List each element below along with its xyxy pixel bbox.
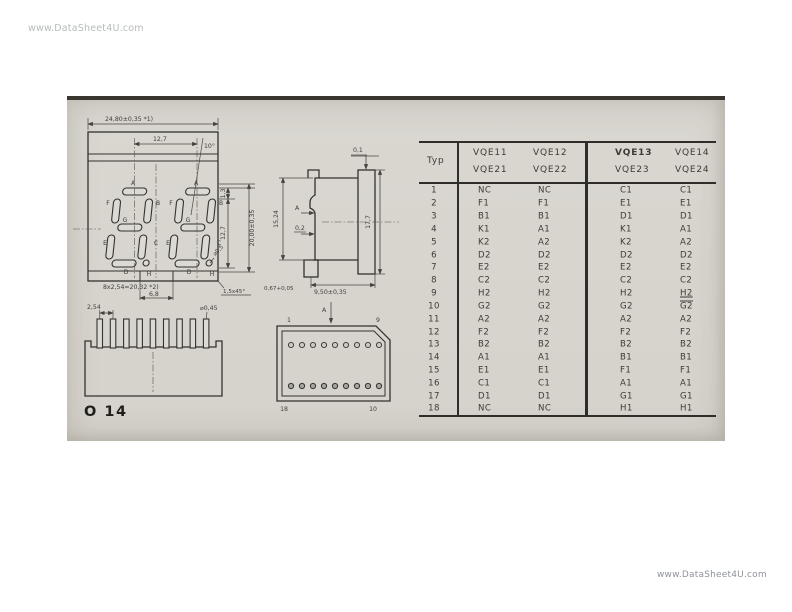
table-row: 13B2B2B2B2 <box>419 339 716 352</box>
table-cell: E1 <box>478 366 490 376</box>
table-cell: B1 <box>538 212 550 222</box>
table-row: 1NCNCC1C1 <box>419 185 716 198</box>
table-cell: K1 <box>478 224 490 234</box>
package-drawings: A F B G E C D H <box>67 100 412 441</box>
table-cell: F1 <box>620 366 631 376</box>
bottom-view-drawing: 1 9 18 10 A <box>277 302 390 413</box>
table-cell: 16 <box>422 378 446 388</box>
table-cell: H1 <box>620 404 633 414</box>
table-header-vqe23: VQE23 <box>615 165 649 175</box>
table-cell: A1 <box>680 378 692 388</box>
dim-step: 0,2 <box>295 225 305 232</box>
dim-digit-pitch: 12,7 <box>153 136 167 143</box>
table-header-vqe21: VQE21 <box>473 165 507 175</box>
side-profile-view-drawing: 0,1 A 0,2 15,24 17,7 0,67+0,05 9,50±0, <box>264 147 399 296</box>
table-cell: 12 <box>422 327 446 337</box>
table-cell: 3 <box>422 212 446 222</box>
pin-number-18: 18 <box>280 406 288 413</box>
dim-package-depth: 9,50±0,35 <box>314 289 347 296</box>
table-cell: A2 <box>538 314 550 324</box>
table-row: 17D1D1G1G1 <box>419 390 716 403</box>
table-cell: F1 <box>538 199 549 209</box>
table-cell: D1 <box>620 212 633 222</box>
watermark-bottom: www.DataSheet4U.com <box>657 570 767 580</box>
watermark-top: www.DataSheet4U.com <box>28 23 144 34</box>
table-cell: D1 <box>538 391 551 401</box>
dim-overall-height: 20,00±0,35 <box>249 210 256 247</box>
table-cell: NC <box>478 404 491 414</box>
table-row: 15E1E1F1F1 <box>419 365 716 378</box>
table-cell: E1 <box>680 199 692 209</box>
table-cell: 18 <box>422 404 446 414</box>
table-cell: NC <box>538 404 551 414</box>
table-cell: A1 <box>478 353 490 363</box>
table-header-vqe11: VQE11 <box>473 148 507 158</box>
table-cell: 15 <box>422 366 446 376</box>
pin-side-view-drawing: 2,54 ⌀0,45 <box>85 304 222 396</box>
table-cell: C1 <box>680 186 692 196</box>
table-cell: B1 <box>680 353 692 363</box>
table-cell: NC <box>538 186 551 196</box>
table-cell: 13 <box>422 340 446 350</box>
table-cell: B2 <box>478 340 490 350</box>
table-cell: D2 <box>620 250 633 260</box>
table-header-vqe14: VQE14 <box>675 148 709 158</box>
table-cell: D2 <box>680 250 693 260</box>
dim-pin-length: 0,67+0,05 <box>264 286 294 292</box>
table-cell: G2 <box>620 301 633 311</box>
dim-notch-width: 6,8 <box>149 291 159 298</box>
table-row: 18NCNCH1H1 <box>419 403 716 416</box>
table-row: 8C2C2C2C2 <box>419 275 716 288</box>
table-row: 4K1A1K1A1 <box>419 223 716 236</box>
table-cell: E1 <box>538 366 550 376</box>
front-view-drawing: 24,80±0,35 *1) 12,7 10° 1,3 12,7 20,00±0… <box>73 116 256 300</box>
table-cell: G2 <box>680 301 693 311</box>
table-cell: H2 <box>538 289 551 299</box>
table-cell: E2 <box>538 263 550 273</box>
table-row: 7E2E2E2E2 <box>419 262 716 275</box>
table-cell: 7 <box>422 263 446 273</box>
table-cell: E2 <box>620 263 632 273</box>
table-cell: K2 <box>478 237 490 247</box>
dim-body-height: 15,24 <box>273 210 280 228</box>
pin-number-9: 9 <box>376 317 380 324</box>
table-cell: G2 <box>538 301 551 311</box>
table-cell: C2 <box>478 276 490 286</box>
page: { "watermarks": { "top": "www.DataSheet4… <box>0 0 792 612</box>
table-cell: 2 <box>422 199 446 209</box>
table-cell: G1 <box>680 391 693 401</box>
table-cell: H2 <box>478 289 491 299</box>
table-cell: 11 <box>422 314 446 324</box>
table-row: 14A1A1B1B1 <box>419 352 716 365</box>
table-row: 11A2A2A2A2 <box>419 313 716 326</box>
table-header-vqe13: VQE13 <box>615 148 652 158</box>
dim-pin-diameter: ⌀0,45 <box>200 305 218 312</box>
table-cell: 4 <box>422 224 446 234</box>
dim-dp-diameter: ⌀0,5 <box>212 244 225 257</box>
table-cell: A2 <box>680 314 692 324</box>
table-cell: A2 <box>620 314 632 324</box>
pinout-table: Typ VQE11 VQE12 VQE13 VQE14 VQE21 VQE22 … <box>419 141 716 417</box>
pin-table-rows: 1NCNCC1C12F1F1E1E13B1B1D1D14K1A1K1A15K2A… <box>419 185 716 416</box>
table-cell: D1 <box>680 212 693 222</box>
table-cell: G1 <box>620 391 633 401</box>
table-cell: 6 <box>422 250 446 260</box>
table-cell: B2 <box>680 340 692 350</box>
table-cell: A1 <box>538 353 550 363</box>
table-cell: A2 <box>538 237 550 247</box>
table-cell: K1 <box>620 224 632 234</box>
table-cell: B2 <box>538 340 550 350</box>
table-cell: K2 <box>620 237 632 247</box>
table-cell: NC <box>478 186 491 196</box>
table-cell: H2 <box>680 289 693 299</box>
dim-chamfer: 1,5x45° <box>223 289 245 295</box>
table-cell: D2 <box>478 250 491 260</box>
table-cell: B1 <box>620 353 632 363</box>
table-cell: F2 <box>620 327 631 337</box>
pin-number-1: 1 <box>287 317 291 324</box>
table-cell: G2 <box>478 301 491 311</box>
table-cell: 8 <box>422 276 446 286</box>
table-cell: 10 <box>422 301 446 311</box>
dim-pin-pitch: 2,54 <box>87 304 101 311</box>
table-header-typ: Typ <box>427 156 445 166</box>
dim-pin-pitch-row: 8x2,54=20,32 *2) <box>103 284 159 291</box>
table-cell: C2 <box>538 276 550 286</box>
table-row: 6D2D2D2D2 <box>419 249 716 262</box>
section-label-a: A <box>295 205 300 212</box>
table-cell: F1 <box>680 366 691 376</box>
table-cell: B2 <box>620 340 632 350</box>
table-rule-top <box>419 141 716 143</box>
table-row: 9H2H2H2H2 <box>419 288 716 301</box>
table-cell: F2 <box>538 327 549 337</box>
table-header-vqe22: VQE22 <box>533 165 567 175</box>
table-cell: E2 <box>478 263 490 273</box>
table-cell: 17 <box>422 391 446 401</box>
section-arrow-label-a: A <box>322 307 327 314</box>
table-cell: 14 <box>422 353 446 363</box>
table-row: 10G2G2G2G2 <box>419 300 716 313</box>
table-cell: A2 <box>680 237 692 247</box>
table-cell: 5 <box>422 237 446 247</box>
table-row: 2F1F1E1E1 <box>419 198 716 211</box>
table-cell: F2 <box>478 327 489 337</box>
dim-tilt-angle: 10° <box>204 142 215 150</box>
table-cell: F1 <box>478 199 489 209</box>
dim-digit-height: 12,7 <box>220 226 227 240</box>
pin-number-10: 10 <box>369 406 377 413</box>
table-cell: C1 <box>538 378 550 388</box>
table-header-vqe24: VQE24 <box>675 165 709 175</box>
datasheet-scan-panel: A F B G E C D H <box>67 96 725 441</box>
table-cell: D2 <box>538 250 551 260</box>
dim-face-offset: 0,1 <box>353 147 363 154</box>
dim-face-height: 17,7 <box>365 215 372 229</box>
table-cell: E2 <box>680 263 692 273</box>
dim-overall-width: 24,80±0,35 *1) <box>105 116 153 123</box>
table-cell: D1 <box>478 391 491 401</box>
table-header-vqe12: VQE12 <box>533 148 567 158</box>
table-cell: C1 <box>478 378 490 388</box>
table-row: 5K2A2K2A2 <box>419 236 716 249</box>
table-cell: A1 <box>620 378 632 388</box>
table-cell: A2 <box>478 314 490 324</box>
pin-holes-top-row <box>288 342 381 347</box>
table-cell: E1 <box>620 199 632 209</box>
dim-seg-width: 1,3 <box>220 189 227 199</box>
table-rule-header <box>419 182 716 184</box>
table-cell: C2 <box>620 276 632 286</box>
table-cell: F2 <box>680 327 691 337</box>
table-cell: C2 <box>680 276 692 286</box>
table-cell: A1 <box>680 224 692 234</box>
table-row: 3B1B1D1D1 <box>419 211 716 224</box>
table-cell: H1 <box>680 404 693 414</box>
pin-holes-bottom-row <box>288 383 381 388</box>
table-cell: C1 <box>620 186 632 196</box>
table-cell: 1 <box>422 186 446 196</box>
table-row: 16C1C1A1A1 <box>419 377 716 390</box>
table-row: 12F2F2F2F2 <box>419 326 716 339</box>
table-cell: 9 <box>422 289 446 299</box>
page-label: O 14 <box>84 404 128 420</box>
table-cell: H2 <box>620 289 633 299</box>
table-cell: A1 <box>538 224 550 234</box>
table-cell: B1 <box>478 212 490 222</box>
